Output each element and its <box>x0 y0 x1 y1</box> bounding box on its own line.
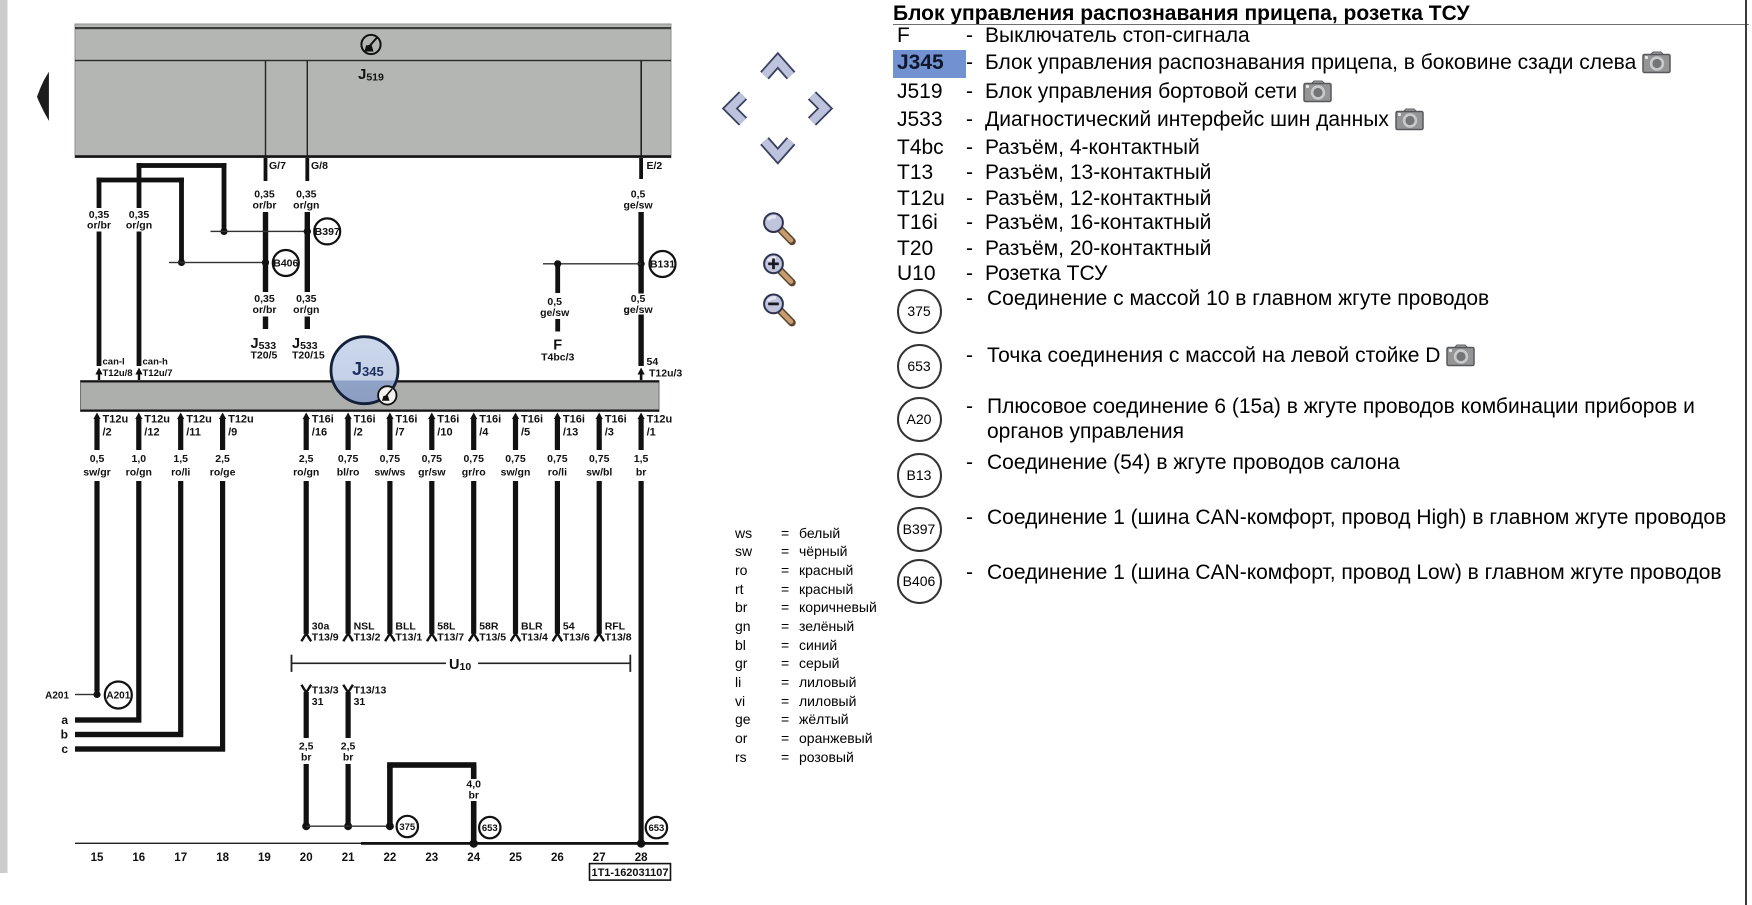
svg-text:T16i: T16i <box>521 414 543 426</box>
svg-text:31: 31 <box>354 696 366 708</box>
svg-text:375: 375 <box>399 822 416 833</box>
svg-text:24: 24 <box>467 852 480 864</box>
svg-text:T12u: T12u <box>103 414 129 426</box>
svg-text:ro/ge: ro/ge <box>210 467 236 479</box>
svg-text:gr/ro: gr/ro <box>462 467 486 479</box>
svg-text:G/7: G/7 <box>269 160 286 172</box>
svg-text:ro/gn: ro/gn <box>126 467 152 479</box>
svg-text:/16: /16 <box>312 427 327 439</box>
svg-text:31: 31 <box>312 696 324 708</box>
svg-text:T13/13: T13/13 <box>354 685 387 697</box>
svg-text:T4bc/3: T4bc/3 <box>541 352 574 364</box>
svg-text:T12u/7: T12u/7 <box>143 368 173 379</box>
svg-text:T16i: T16i <box>605 414 627 426</box>
svg-text:/3: /3 <box>605 427 614 439</box>
svg-text:ge/sw: ge/sw <box>624 304 654 316</box>
svg-text:20: 20 <box>300 852 313 864</box>
svg-text:A201: A201 <box>45 691 69 702</box>
svg-text:28: 28 <box>635 852 648 864</box>
svg-text:0,75: 0,75 <box>463 453 484 465</box>
svg-text:sw/ws: sw/ws <box>374 467 405 479</box>
svg-text:26: 26 <box>551 852 564 864</box>
svg-text:br: br <box>468 790 479 802</box>
svg-text:/7: /7 <box>395 427 404 439</box>
svg-text:T13/6: T13/6 <box>563 632 590 644</box>
svg-text:B397: B397 <box>315 226 340 238</box>
svg-text:2,5: 2,5 <box>215 453 230 465</box>
svg-text:21: 21 <box>342 852 355 864</box>
svg-text:or/gn: or/gn <box>293 200 319 212</box>
svg-text:T16i: T16i <box>563 414 585 426</box>
svg-text:or/gn: or/gn <box>293 304 319 316</box>
svg-text:T12u/8: T12u/8 <box>103 368 133 379</box>
svg-text:G/8: G/8 <box>311 160 328 172</box>
svg-text:0,5: 0,5 <box>90 453 105 465</box>
svg-text:br: br <box>343 752 354 764</box>
svg-text:sw/bl: sw/bl <box>586 467 612 479</box>
svg-text:T16i: T16i <box>312 414 334 426</box>
svg-text:br: br <box>301 752 312 764</box>
svg-text:T13/8: T13/8 <box>605 632 632 644</box>
svg-text:54: 54 <box>647 356 659 368</box>
svg-text:T13/7: T13/7 <box>437 632 464 644</box>
svg-text:ro/li: ro/li <box>548 467 567 479</box>
svg-text:T12u: T12u <box>228 414 254 426</box>
svg-text:B131: B131 <box>650 259 675 271</box>
svg-text:/12: /12 <box>144 427 159 439</box>
svg-text:ge/sw: ge/sw <box>540 307 570 319</box>
svg-text:or/br: or/br <box>253 200 277 212</box>
svg-text:16: 16 <box>132 852 145 864</box>
svg-text:ro/gn: ro/gn <box>293 467 319 479</box>
svg-text:T12u: T12u <box>647 414 673 426</box>
svg-text:bl/ro: bl/ro <box>337 467 360 479</box>
svg-text:653: 653 <box>648 823 664 834</box>
svg-text:T13/4: T13/4 <box>521 632 548 644</box>
svg-text:/5: /5 <box>521 427 530 439</box>
svg-text:gr/sw: gr/sw <box>418 467 446 479</box>
svg-text:0,75: 0,75 <box>547 453 568 465</box>
svg-text:1T1-162031107: 1T1-162031107 <box>591 867 668 879</box>
svg-text:27: 27 <box>593 852 606 864</box>
svg-text:0,75: 0,75 <box>422 453 443 465</box>
svg-text:0,75: 0,75 <box>338 453 359 465</box>
svg-text:1,5: 1,5 <box>173 453 188 465</box>
svg-text:1,0: 1,0 <box>131 453 146 465</box>
svg-text:T16i: T16i <box>354 414 376 426</box>
svg-text:can-l: can-l <box>103 357 125 368</box>
svg-text:c: c <box>61 742 68 756</box>
svg-text:/2: /2 <box>354 427 363 439</box>
svg-text:T12u: T12u <box>144 414 170 426</box>
svg-text:1,5: 1,5 <box>634 453 649 465</box>
svg-text:B406: B406 <box>273 258 298 270</box>
svg-text:can-h: can-h <box>143 357 169 368</box>
svg-text:2,5: 2,5 <box>299 453 314 465</box>
svg-text:T20/5: T20/5 <box>251 350 278 362</box>
svg-text:/9: /9 <box>228 427 237 439</box>
svg-text:sw/gn: sw/gn <box>501 467 531 479</box>
svg-text:19: 19 <box>258 852 271 864</box>
svg-text:17: 17 <box>174 852 187 864</box>
svg-text:b: b <box>61 728 68 742</box>
svg-text:A201: A201 <box>106 691 130 702</box>
svg-text:E/2: E/2 <box>647 160 663 172</box>
svg-text:0,75: 0,75 <box>589 453 610 465</box>
svg-text:T13/1: T13/1 <box>395 632 422 644</box>
svg-text:T16i: T16i <box>437 414 459 426</box>
svg-text:a: a <box>61 713 68 727</box>
svg-text:25: 25 <box>509 852 522 864</box>
svg-text:/1: /1 <box>647 427 656 439</box>
svg-text:/11: /11 <box>186 427 201 439</box>
svg-text:T13/2: T13/2 <box>354 632 381 644</box>
svg-text:22: 22 <box>384 852 397 864</box>
svg-text:or/gn: or/gn <box>126 219 152 231</box>
svg-text:sw/gr: sw/gr <box>83 467 110 479</box>
svg-text:/13: /13 <box>563 427 578 439</box>
svg-text:/2: /2 <box>103 427 112 439</box>
svg-text:ge/sw: ge/sw <box>624 200 654 212</box>
svg-text:T16i: T16i <box>395 414 417 426</box>
svg-text:T13/5: T13/5 <box>479 632 506 644</box>
svg-text:or/br: or/br <box>87 219 111 231</box>
svg-text:U10: U10 <box>449 657 471 673</box>
svg-text:T20/15: T20/15 <box>292 350 325 362</box>
svg-text:15: 15 <box>91 852 104 864</box>
svg-text:18: 18 <box>216 852 229 864</box>
svg-text:T13/9: T13/9 <box>312 632 339 644</box>
svg-text:0,75: 0,75 <box>380 453 401 465</box>
svg-text:br: br <box>636 467 647 479</box>
svg-text:or/br: or/br <box>253 304 277 316</box>
svg-text:T16i: T16i <box>479 414 501 426</box>
svg-text:23: 23 <box>425 852 438 864</box>
svg-text:T13/3: T13/3 <box>312 685 339 697</box>
svg-text:T12u: T12u <box>186 414 212 426</box>
svg-text:ro/li: ro/li <box>171 467 190 479</box>
svg-text:T12u/3: T12u/3 <box>649 368 682 380</box>
svg-text:0,75: 0,75 <box>505 453 526 465</box>
svg-text:/10: /10 <box>437 427 452 439</box>
svg-text:653: 653 <box>482 823 498 834</box>
svg-text:/4: /4 <box>479 427 489 439</box>
